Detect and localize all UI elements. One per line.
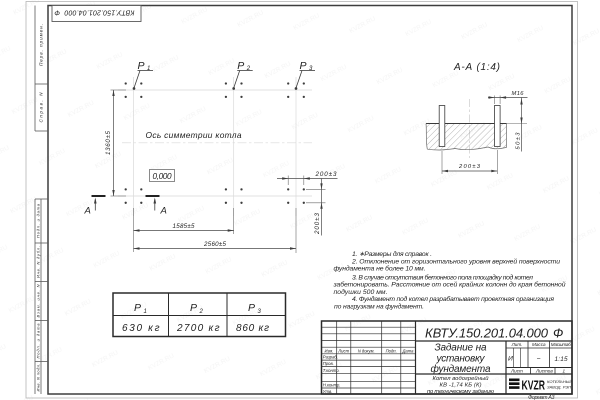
svg-text:1. ∗Размеры для справок .: 1. ∗Размеры для справок . — [352, 250, 432, 258]
svg-text:КОТЕЛЬНЫЙ: КОТЕЛЬНЫЙ — [547, 379, 572, 384]
svg-text:Р: Р — [134, 302, 141, 314]
svg-text:1:15: 1:15 — [555, 356, 568, 363]
svg-text:Взам. инв. N: Взам. инв. N — [35, 284, 40, 317]
svg-text:Ф: Ф — [54, 9, 60, 16]
svg-text:КВТУ.150.201.04.000: КВТУ.150.201.04.000 — [64, 9, 134, 16]
svg-text:Ось симметрии котла: Ось симметрии котла — [146, 130, 242, 140]
svg-text:2700 кг: 2700 кг — [176, 323, 220, 334]
svg-text:А-А (1:4): А-А (1:4) — [453, 62, 500, 73]
svg-text:КВТУ.150.201.04.000: КВТУ.150.201.04.000 — [425, 326, 549, 341]
svg-text:Р: Р — [138, 60, 145, 72]
svg-text:Лист: Лист — [510, 369, 523, 374]
svg-text:Утв.: Утв. — [323, 389, 333, 394]
svg-text:Формат А3: Формат А3 — [528, 395, 555, 400]
svg-text:Изм.: Изм. — [325, 348, 334, 353]
svg-text:Лист: Лист — [337, 348, 349, 353]
svg-text:Инв. N дубл.: Инв. N дубл. — [35, 246, 40, 278]
svg-text:200±3: 200±3 — [315, 171, 338, 178]
svg-text:1585±5: 1585±5 — [173, 223, 196, 230]
svg-text:Задание на: Задание на — [435, 343, 487, 354]
svg-text:подушки 500 мм.: подушки 500 мм. — [334, 288, 388, 296]
svg-text:Дата: Дата — [401, 348, 414, 353]
svg-text:Ф: Ф — [553, 326, 563, 341]
svg-text:Р: Р — [237, 60, 244, 72]
svg-text:Н.контр.: Н.контр. — [323, 382, 341, 387]
svg-text:KVZR: KVZR — [522, 379, 546, 393]
svg-text:Т.контр.: Т.контр. — [323, 368, 340, 373]
svg-text:2. Отклонение от горизонтально: 2. Отклонение от горизонтального уровня … — [351, 258, 560, 266]
svg-text:0,000: 0,000 — [153, 172, 172, 181]
svg-text:установку: установку — [436, 354, 486, 365]
svg-text:по нагрузкам на фундамент.: по нагрузкам на фундамент. — [334, 302, 424, 310]
svg-text:А: А — [84, 206, 91, 217]
svg-text:ЗАВОД. РЭП: ЗАВОД. РЭП — [547, 385, 571, 390]
svg-text:4. Фундамент под котел разраба: 4. Фундамент под котел разрабатывает про… — [352, 295, 554, 303]
svg-text:Подп. и дата: Подп. и дата — [35, 323, 40, 359]
svg-text:фундамента: фундамента — [431, 363, 491, 375]
svg-text:Р: Р — [190, 302, 197, 314]
svg-text:Перв. примен.: Перв. примен. — [39, 24, 44, 66]
svg-text:Р: Р — [248, 302, 255, 314]
svg-text:Листов: Листов — [535, 369, 553, 374]
svg-text:2: 2 — [246, 66, 251, 72]
svg-text:3. В случае отсутствия бетонно: 3. В случае отсутствия бетонного пола пл… — [352, 274, 533, 282]
svg-text:Масса: Масса — [532, 342, 546, 347]
svg-text:Пров.: Пров. — [323, 361, 334, 366]
svg-text:Разраб.: Разраб. — [323, 355, 338, 360]
svg-text:1360±5: 1360±5 — [105, 130, 112, 155]
svg-text:50±3: 50±3 — [516, 132, 522, 150]
svg-text:2: 2 — [199, 309, 204, 315]
svg-text:Инв. N подл.: Инв. N подл. — [35, 364, 40, 392]
svg-text:фундамента не более 10 мм.: фундамента не более 10 мм. — [334, 265, 426, 273]
svg-text:по техническому заданию: по техническому заданию — [427, 389, 495, 395]
svg-text:1: 1 — [144, 309, 147, 315]
svg-text:–: – — [536, 356, 541, 362]
svg-text:Масштаб: Масштаб — [551, 342, 571, 347]
svg-text:М16: М16 — [512, 91, 525, 97]
svg-text:И: И — [508, 356, 513, 363]
svg-text:Подп.: Подп. — [386, 348, 397, 353]
svg-text:забетонировать. Расстояние от: забетонировать. Расстояние от осей крайн… — [333, 281, 566, 289]
svg-text:1: 1 — [147, 66, 150, 72]
svg-text:Лит.: Лит. — [511, 342, 523, 347]
svg-text:Подп. и дата: Подп. и дата — [35, 203, 40, 238]
svg-text:860 кг: 860 кг — [236, 323, 269, 334]
svg-text:200±3: 200±3 — [458, 164, 481, 170]
svg-text:А: А — [160, 206, 167, 217]
svg-text:1: 1 — [563, 369, 566, 374]
svg-text:Р: Р — [300, 60, 307, 72]
svg-text:Котел водогрейный: Котел водогрейный — [433, 375, 490, 382]
svg-text:Справ. N: Справ. N — [39, 92, 44, 123]
svg-text:N докум.: N докум. — [358, 348, 375, 353]
svg-text:КВ -1,74 КБ (К): КВ -1,74 КБ (К) — [440, 383, 482, 389]
svg-text:2560±5: 2560±5 — [203, 241, 227, 248]
svg-text:200±3: 200±3 — [314, 212, 321, 235]
